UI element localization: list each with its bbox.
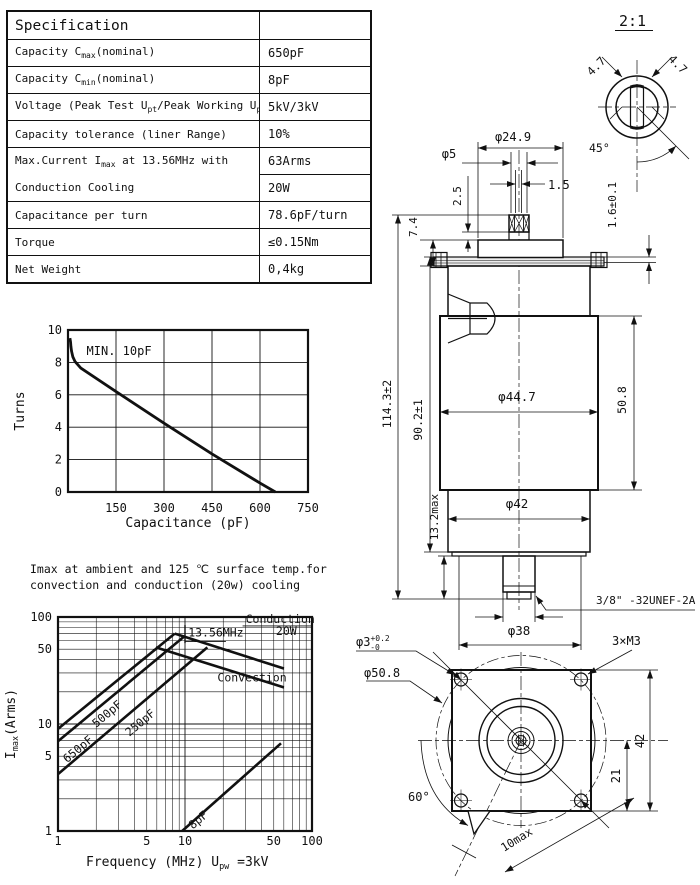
svg-text:10: 10 [48,323,62,337]
dim-2-5-label: 2.5 [451,186,464,206]
dim-50-8-label: 50.8 [615,386,629,414]
svg-text:100: 100 [30,610,52,624]
angle-60-label: 60° [408,790,430,804]
center-lines [418,60,676,876]
bolt-circle-label: φ50.8 [364,666,400,680]
spec-row: Conduction Cooling20W [7,175,371,202]
spec-label-cell: Voltage (Peak Test Upt/Peak Working Upw) [7,94,260,121]
svg-text:300: 300 [153,501,175,515]
imax-chart-title-line1: Imax at ambient and 125 ℃ surface temp.f… [30,561,370,577]
svg-text:10: 10 [178,834,192,848]
imax-vs-frequency-chart: 15105010015105010013.56MHzConduction20WC… [0,598,350,885]
min-capacity-annotation: MIN. 10pF [87,344,152,358]
side-terminal [448,294,495,343]
detail-dim-left-label: 4.7 [584,54,609,79]
spec-row: Voltage (Peak Test Upt/Peak Working Upw)… [7,94,371,121]
svg-text:1: 1 [45,824,52,838]
freq-13-56-label: 13.56MHz [188,625,243,639]
spec-row: Net Weight0,4kg [7,256,371,284]
curve-label-20W: 20W [276,624,297,638]
m3-holes-label: 3×M3 [612,634,641,648]
svg-text:5: 5 [45,749,52,763]
curve-label-8pF: 8pF [186,808,211,832]
dimension-labels: 2:1 4.7 4.7 45° φ24.9 φ5 2.5 1.5 7.4 1.6… [364,12,696,855]
imax-chart-title-line2: convection and conduction (20w) cooling [30,577,370,593]
chart2-ylabel: Imax(Arms) [4,689,21,759]
spec-label-cell: Capacity tolerance (liner Range) [7,121,260,148]
imax-chart-title: Imax at ambient and 125 ℃ surface temp.f… [30,561,370,593]
spec-label-cell: Capacity Cmin(nominal) [7,67,260,94]
svg-text:5: 5 [143,834,150,848]
spec-row: Capacity Cmax(nominal)650pF [7,40,371,67]
svg-text:2: 2 [55,453,62,467]
dim-phi24-9-label: φ24.9 [495,130,531,144]
spec-label-cell: Torque [7,229,260,256]
svg-text:φ3+0.2-0: φ3+0.2-0 [356,634,390,652]
top-cap [478,240,563,258]
dim-13-2-label: 13.2max [428,493,441,540]
detail-angle-label: 45° [589,141,610,155]
dim-phi38-label: φ38 [508,623,531,638]
svg-text:150: 150 [105,501,127,515]
dim-21-label: 21 [609,769,623,783]
spec-header-row: Specification [7,11,371,40]
chart2-xlabel: Frequency (MHz) Upw =3kV [86,855,269,872]
locating-pin [468,811,490,834]
svg-text:10: 10 [38,717,52,731]
curve-label-650pF: 650pF [60,732,96,765]
svg-text:100: 100 [301,834,323,848]
svg-text:50: 50 [267,834,281,848]
dim-phi44-7-label: φ44.7 [498,389,536,404]
page: { "spec_table": { "title": "Specificatio… [0,0,700,885]
spec-table: SpecificationCapacity Cmax(nominal)650pF… [6,10,372,284]
turns-vs-capacitance-chart: 1503004506007500246810MIN. 10pFCapacitan… [0,300,350,545]
flange-plate [434,257,604,266]
spec-row: Capacity Cmin(nominal)8pF [7,67,371,94]
detail-dim-right-label: 4.7 [666,52,691,77]
svg-text:600: 600 [249,501,271,515]
dim-1-6-label: 1.6±0.1 [606,182,619,228]
spec-title: Specification [7,11,260,40]
dim-7-4-label: 7.4 [407,217,420,237]
svg-text:50: 50 [38,642,52,656]
dim-114-3-label: 114.3±2 [380,380,394,428]
svg-text:450: 450 [201,501,223,515]
dim-10max-label: 10max [498,824,535,854]
svg-text:4: 4 [55,420,62,434]
spec-label-cell: Conduction Cooling [7,175,260,202]
spec-row: Max.Current Imax at 13.56MHz with63Arms [7,148,371,175]
dim-90-2-label: 90.2±1 [411,399,425,441]
spec-row: Torque≤0.15Nm [7,229,371,256]
dim-phi5-label: φ5 [442,147,456,161]
spec-label-cell: Capacitance per turn [7,202,260,229]
svg-text:750: 750 [297,501,319,515]
curve-label-Convection: Convection [217,670,286,684]
svg-text:1: 1 [54,834,61,848]
technical-drawing: 2:1 4.7 4.7 45° φ24.9 φ5 2.5 1.5 7.4 1.6… [350,0,700,885]
svg-text:8: 8 [55,355,62,369]
chart1-xlabel: Capacitance (pF) [125,516,250,531]
svg-text:0: 0 [55,485,62,499]
svg-text:6: 6 [55,388,62,402]
capacitance-curve [70,338,275,492]
pin-hole-dia-label: φ3+0.2-0 [356,634,390,652]
spec-label-cell: Capacity Cmax(nominal) [7,40,260,67]
dim-1-5-label: 1.5 [548,178,570,192]
scale-label: 2:1 [619,12,646,30]
dim-phi42-label: φ42 [506,496,529,511]
chart1-ylabel: Turns [13,391,28,430]
dim-42-label: 42 [633,734,647,748]
spec-row: Capacity tolerance (liner Range)10% [7,121,371,148]
spec-label-cell: Net Weight [7,256,260,284]
thread-spec-label: 3/8" -32UNEF-2A [596,594,696,607]
spec-row: Capacitance per turn78.6pF/turn [7,202,371,229]
spec-label-cell: Max.Current Imax at 13.56MHz with [7,148,260,175]
